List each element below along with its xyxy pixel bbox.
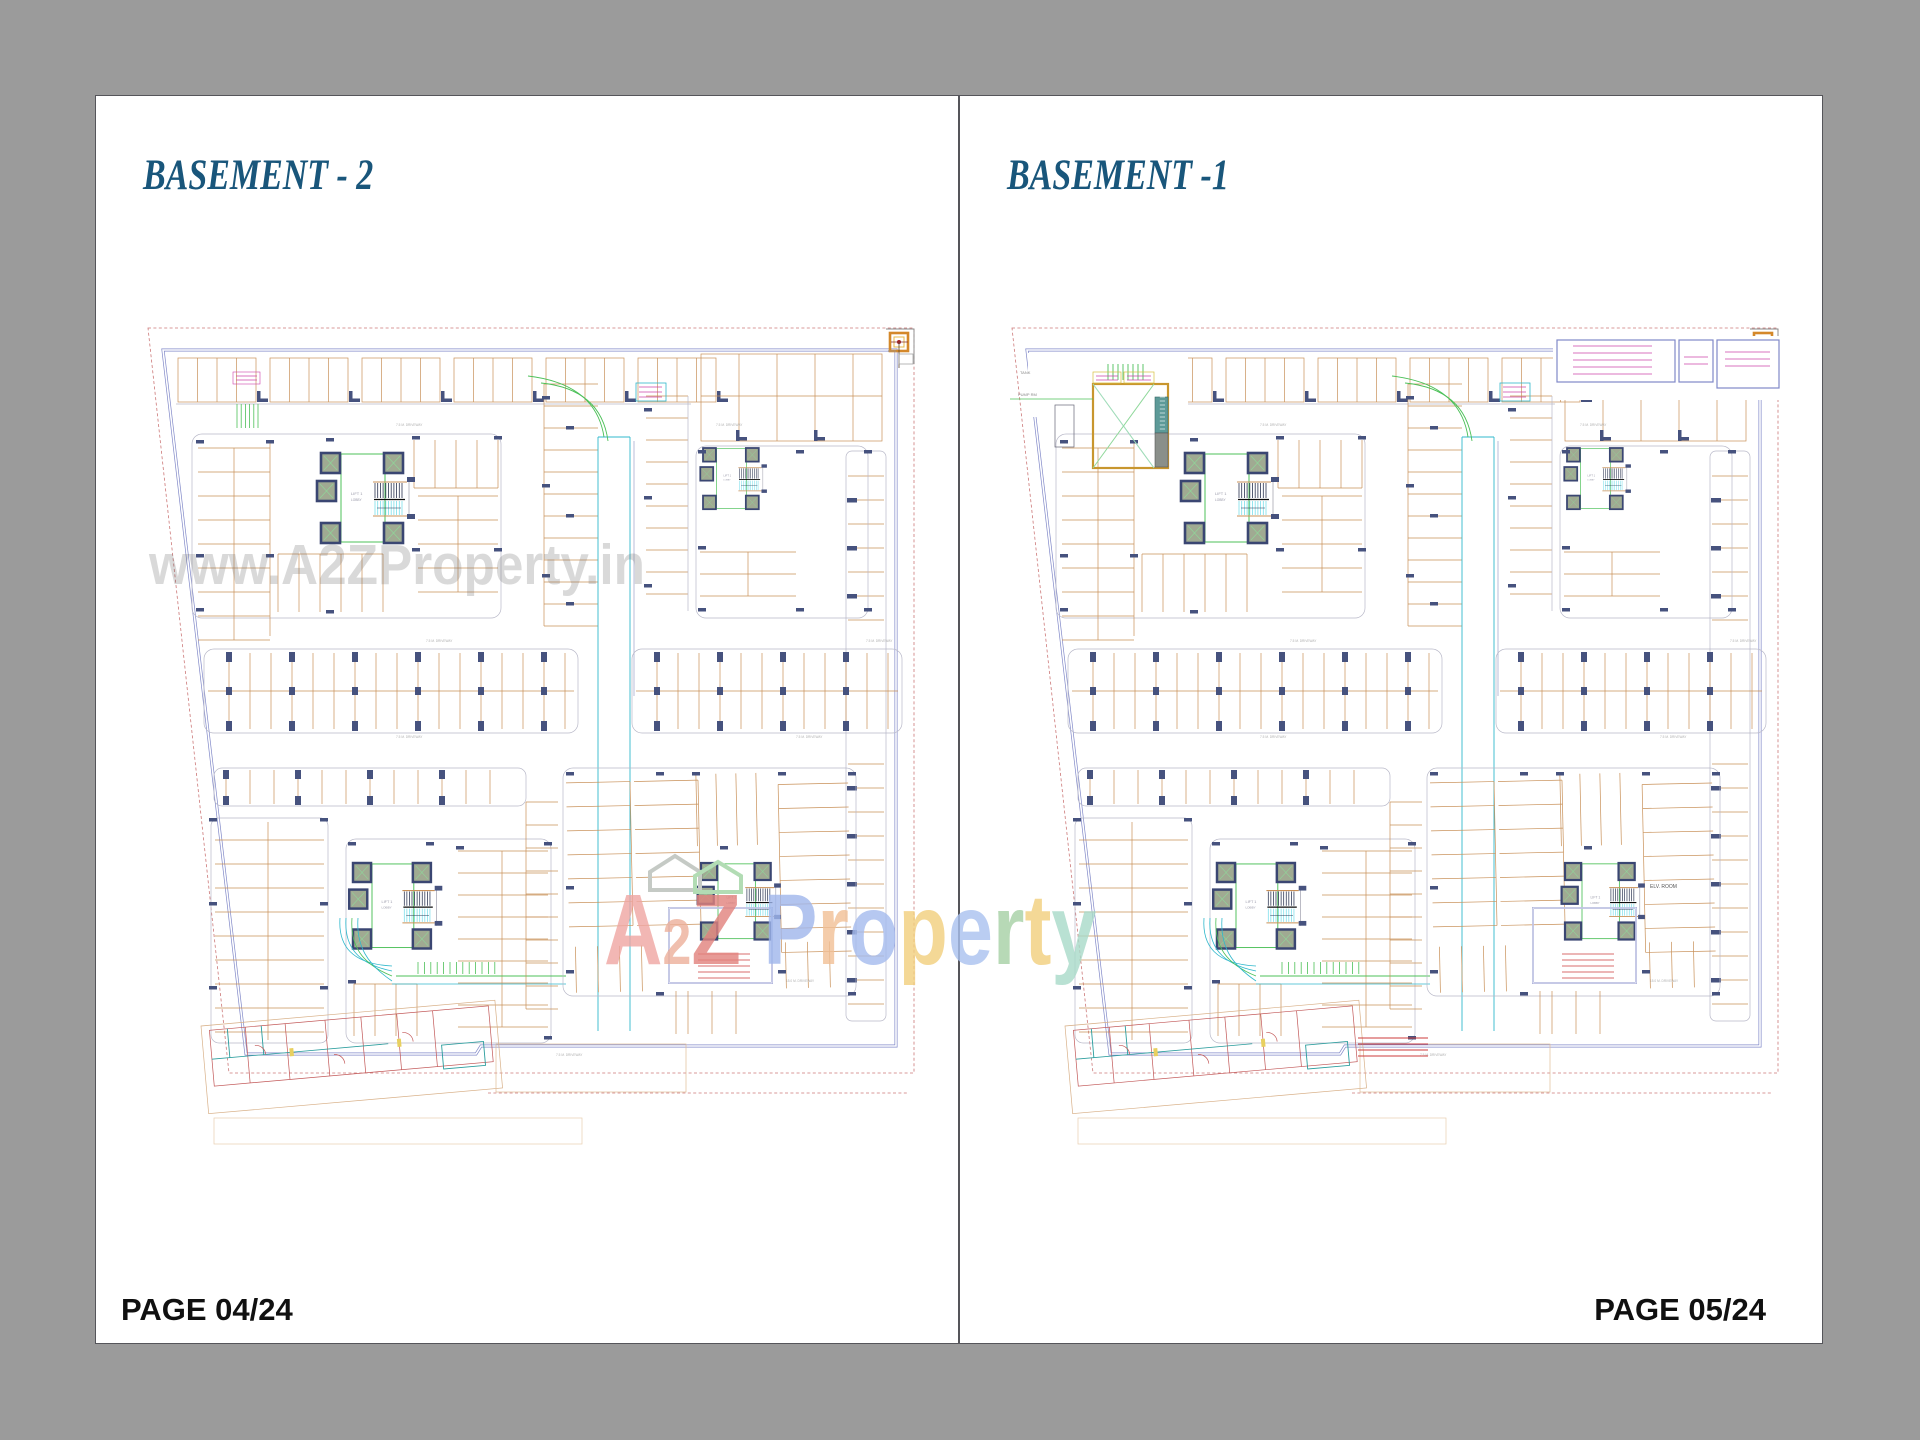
svg-text:LOBBY: LOBBY	[1246, 906, 1256, 910]
svg-text:LOBBY: LOBBY	[1591, 901, 1600, 905]
svg-text:7.5 M. DRIVEWAY: 7.5 M. DRIVEWAY	[1260, 735, 1287, 739]
svg-text:7.5 M. DRIVEWAY: 7.5 M. DRIVEWAY	[1290, 639, 1317, 643]
svg-text:7.5 M. DRIVEWAY: 7.5 M. DRIVEWAY	[556, 1053, 583, 1057]
svg-text:7.5 M. DRIVEWAY: 7.5 M. DRIVEWAY	[866, 639, 893, 643]
svg-text:LIFT 1: LIFT 1	[1591, 896, 1601, 900]
svg-text:LOBBY: LOBBY	[382, 906, 392, 910]
svg-text:7.5 M. DRIVEWAY: 7.5 M. DRIVEWAY	[396, 735, 423, 739]
svg-text:LIFT 1: LIFT 1	[1215, 491, 1227, 496]
svg-text:LIFT 1: LIFT 1	[351, 491, 363, 496]
svg-text:LOBBY: LOBBY	[351, 498, 363, 502]
svg-text:LOBBY: LOBBY	[1587, 480, 1595, 482]
svg-text:7.5 M. DRIVEWAY: 7.5 M. DRIVEWAY	[1730, 639, 1757, 643]
svg-text:7.5 M. DRIVEWAY: 7.5 M. DRIVEWAY	[1660, 735, 1687, 739]
svg-text:LIFT 1: LIFT 1	[1246, 900, 1257, 904]
svg-text:LOBBY: LOBBY	[723, 480, 731, 482]
svg-text:7.5 M. DRIVEWAY: 7.5 M. DRIVEWAY	[1580, 423, 1607, 427]
svg-text:PUMP RM: PUMP RM	[1018, 392, 1037, 397]
svg-text:7.5 M. DRIVEWAY: 7.5 M. DRIVEWAY	[716, 423, 743, 427]
svg-text:7.5 M. DRIVEWAY: 7.5 M. DRIVEWAY	[426, 639, 453, 643]
svg-text:LIFT 1: LIFT 1	[723, 474, 731, 478]
svg-text:TANK: TANK	[1020, 370, 1031, 375]
svg-text:15.0 M. DRIVEWAY: 15.0 M. DRIVEWAY	[1650, 979, 1679, 983]
svg-text:7.5 M. DRIVEWAY: 7.5 M. DRIVEWAY	[396, 423, 423, 427]
svg-text:7.5 M. DRIVEWAY: 7.5 M. DRIVEWAY	[1260, 423, 1287, 427]
svg-text:LIFT 1: LIFT 1	[1587, 474, 1595, 478]
svg-text:BORE: BORE	[888, 349, 897, 353]
svg-text:ELV. ROOM: ELV. ROOM	[1650, 884, 1677, 890]
svg-text:7.5 M. DRIVEWAY: 7.5 M. DRIVEWAY	[796, 735, 823, 739]
svg-text:LOBBY: LOBBY	[1215, 498, 1227, 502]
svg-text:LIFT 1: LIFT 1	[382, 900, 393, 904]
